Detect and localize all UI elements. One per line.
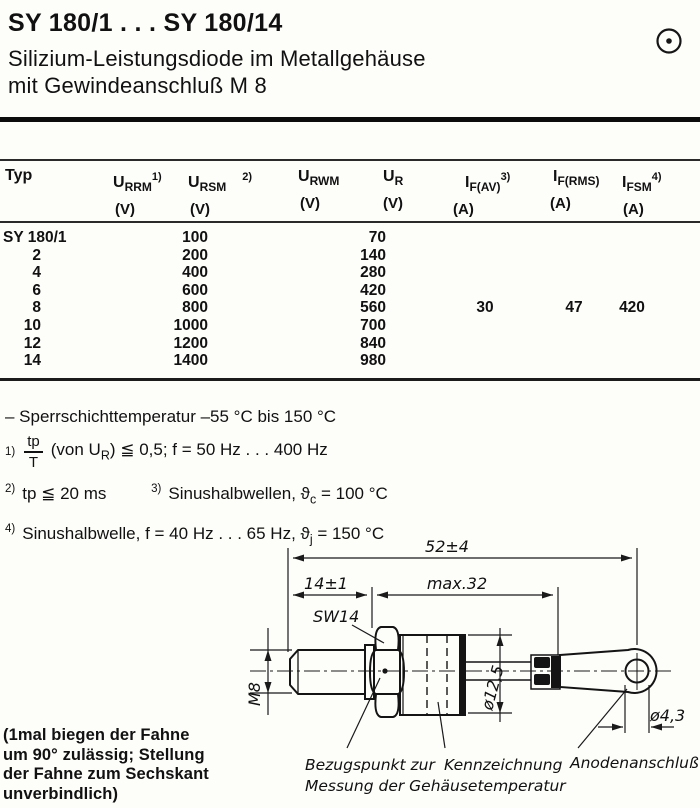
dim-thread-length: 14±1 (304, 574, 348, 593)
unit-ifav: (A) (453, 200, 510, 220)
unit-urrm: (V) (115, 200, 162, 220)
note-1-marker: 1) (5, 441, 15, 464)
cell-urwm: 420 (250, 282, 386, 300)
cell-urwm: 140 (250, 247, 386, 265)
subtitle-line-2: mit Gewindeanschluß M 8 (8, 72, 700, 99)
fraction-tp-over-t: tp T (24, 434, 43, 471)
note-2-text: tp ≦ 20 ms (22, 484, 106, 503)
subtitle-line-1: Silizium-Leistungsdiode im Metallgehäuse (8, 45, 700, 72)
cell-typ: 14 (3, 352, 41, 370)
dim-thread-size: M8 (245, 682, 264, 706)
table-row: SY 180/1 100 70 (0, 229, 700, 247)
label-reference-point-line1: Bezugspunkt zur (305, 756, 436, 774)
label-anode-connection: Anodenanschluß (569, 754, 699, 772)
cell-urwm: 840 (250, 335, 386, 353)
cell-voltage: 100 (70, 229, 208, 247)
case-end-face (459, 636, 466, 715)
unit-urwm: (V) (300, 194, 339, 214)
dim-body-length: max.32 (427, 574, 487, 593)
cell-voltage: 1200 (70, 335, 208, 353)
table-header-row: Typ URRM1) (V) URSM2) (V) URWM (V) UR (V… (0, 161, 700, 223)
col-header-ifav: IF(AV)3) (A) (465, 167, 510, 220)
cell-typ: 12 (3, 335, 41, 353)
col-header-ifrms: IF(RMS) (A) (553, 167, 599, 214)
dim-hex-size: SW14 (313, 607, 359, 626)
table-row: 14 1400 980 (0, 352, 700, 370)
leader-marking (438, 702, 445, 748)
label-marking: Kennzeichnung (444, 756, 563, 774)
circle-dot-icon (654, 26, 684, 56)
footnotes: – Sperrschichttemperatur –55 °C bis 150 … (5, 405, 700, 552)
col-header-ur: UR (V) (383, 167, 403, 214)
datasheet-page: SY 180/1 . . . SY 180/14 Silizium-Leistu… (0, 0, 700, 808)
note-2-3: 2)tp ≦ 20 ms 3)Sinushalbwellen, ϑc = 100… (5, 478, 700, 511)
threaded-stud (290, 650, 365, 694)
cell-urwm: 700 (250, 317, 386, 335)
note-2-marker: 2) (5, 483, 15, 495)
label-reference-point-line2: Messung der Gehäusetemperatur (305, 777, 567, 795)
technical-drawing: 52±4 14±1 max.32 SW14 M8 ø12,5 ø4,3 Bezu… (0, 533, 700, 808)
dim-hole-diameter: ø4,3 (649, 706, 685, 725)
ratings-table: Typ URRM1) (V) URSM2) (V) URWM (V) UR (V… (0, 159, 700, 381)
cell-typ: 4 (3, 264, 41, 282)
table-row: 12 1200 840 (0, 335, 700, 353)
hex-nut-bottom-facet (375, 694, 398, 717)
cell-typ: 8 (3, 299, 41, 317)
table-row: 10 1000 700 (0, 317, 700, 335)
cell-typ: 6 (3, 282, 41, 300)
col-header-urrm: URRM1) (V) (113, 167, 162, 220)
cell-typ: 2 (3, 247, 41, 265)
dim-total-length: 52±4 (425, 537, 469, 556)
cell-ifav: 30 (455, 299, 515, 317)
header: SY 180/1 . . . SY 180/14 Silizium-Leistu… (0, 10, 700, 99)
title-divider (0, 117, 700, 122)
leader-ref-point (347, 678, 380, 748)
note-3: 3)Sinushalbwellen, ϑc = 100 °C (151, 484, 388, 503)
note-1-text: (von UR) ≦ 0,5; f = 50 Hz . . . 400 Hz (51, 438, 328, 467)
case-cylinder (400, 635, 465, 715)
cell-typ: SY 180/1 (3, 229, 67, 247)
table-body: SY 180/1 100 70 2 200 140 4 400 280 6 60… (0, 223, 700, 378)
cell-voltage: 800 (70, 299, 208, 317)
table-row: 6 600 420 (0, 282, 700, 300)
unit-ifsm: (A) (623, 200, 662, 220)
cell-urwm: 280 (250, 264, 386, 282)
cell-ifrms: 47 (544, 299, 604, 317)
cell-urwm: 980 (250, 352, 386, 370)
table-row: 2 200 140 (0, 247, 700, 265)
unit-ur: (V) (383, 194, 403, 214)
cell-voltage: 200 (70, 247, 208, 265)
note-1: 1) tp T (von UR) ≦ 0,5; f = 50 Hz . . . … (5, 434, 700, 471)
note-temp-range: – Sperrschichttemperatur –55 °C bis 150 … (5, 405, 700, 428)
diode-body (290, 627, 657, 717)
col-header-ursm: URSM2) (V) (188, 167, 252, 220)
col-header-ifsm: IFSM4) (A) (622, 167, 662, 220)
cell-urwm: 70 (250, 229, 386, 247)
page-title: SY 180/1 . . . SY 180/14 (8, 10, 700, 37)
cell-urwm: 560 (250, 299, 386, 317)
cell-ifsm: 420 (602, 299, 662, 317)
col-header-urwm: URWM (V) (298, 167, 339, 214)
col-header-typ: Typ (5, 167, 32, 185)
table-row: 8 800 560 30 47 420 (0, 299, 700, 317)
leader-anode (578, 689, 627, 748)
unit-ifrms: (A) (550, 194, 599, 214)
table-row: 4 400 280 (0, 264, 700, 282)
cell-voltage: 600 (70, 282, 208, 300)
cell-voltage: 400 (70, 264, 208, 282)
reference-point-dot (382, 668, 387, 673)
unit-ursm: (V) (190, 200, 252, 220)
cell-voltage: 1000 (70, 317, 208, 335)
hex-nut-top-facet (375, 627, 398, 650)
flag-bend-note: (1mal biegen der Fahne um 90° zulässig; … (3, 726, 248, 804)
cell-typ: 10 (3, 317, 41, 335)
cell-voltage: 1400 (70, 352, 208, 370)
